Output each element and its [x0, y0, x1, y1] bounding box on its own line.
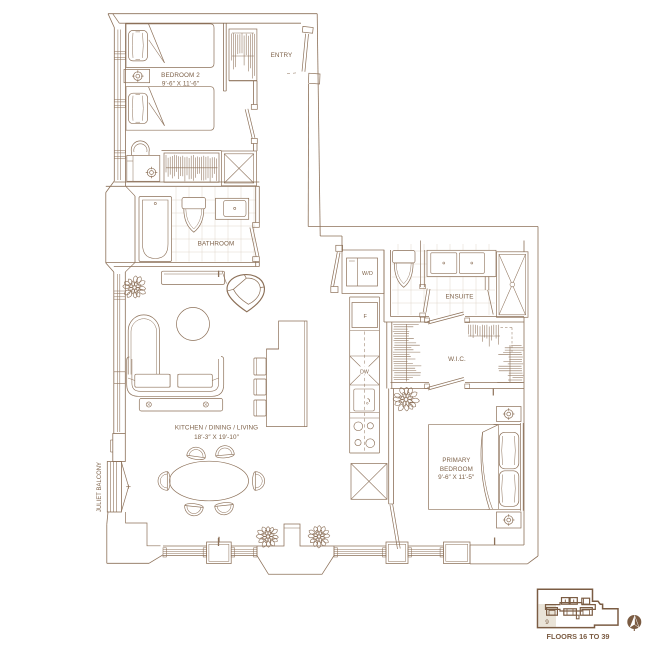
- svg-text:FLOORS 16 TO 39: FLOORS 16 TO 39: [547, 632, 610, 641]
- svg-text:DW: DW: [360, 369, 369, 375]
- svg-text:PRIMARY: PRIMARY: [442, 457, 470, 464]
- svg-text:BEDROOM 2: BEDROOM 2: [161, 72, 200, 79]
- svg-text:JULIET BALCONY: JULIET BALCONY: [97, 462, 103, 512]
- svg-text:BEDROOM: BEDROOM: [440, 466, 473, 473]
- svg-text:F: F: [364, 314, 368, 320]
- svg-text:9: 9: [545, 619, 549, 626]
- svg-text:W/D: W/D: [362, 271, 373, 277]
- svg-text:ENSUITE: ENSUITE: [446, 293, 474, 300]
- svg-text:W.I.C.: W.I.C.: [448, 356, 466, 363]
- svg-text:BATHROOM: BATHROOM: [198, 240, 235, 247]
- svg-text:ENTRY: ENTRY: [271, 52, 293, 59]
- svg-text:KITCHEN / DINING / LIVING: KITCHEN / DINING / LIVING: [175, 425, 258, 432]
- svg-text:9′-6″ X 11′-5″: 9′-6″ X 11′-5″: [438, 474, 475, 481]
- svg-text:9′-6″ X 11′-6″: 9′-6″ X 11′-6″: [162, 81, 200, 88]
- svg-text:18′-3″ X 19′-10″: 18′-3″ X 19′-10″: [194, 434, 239, 441]
